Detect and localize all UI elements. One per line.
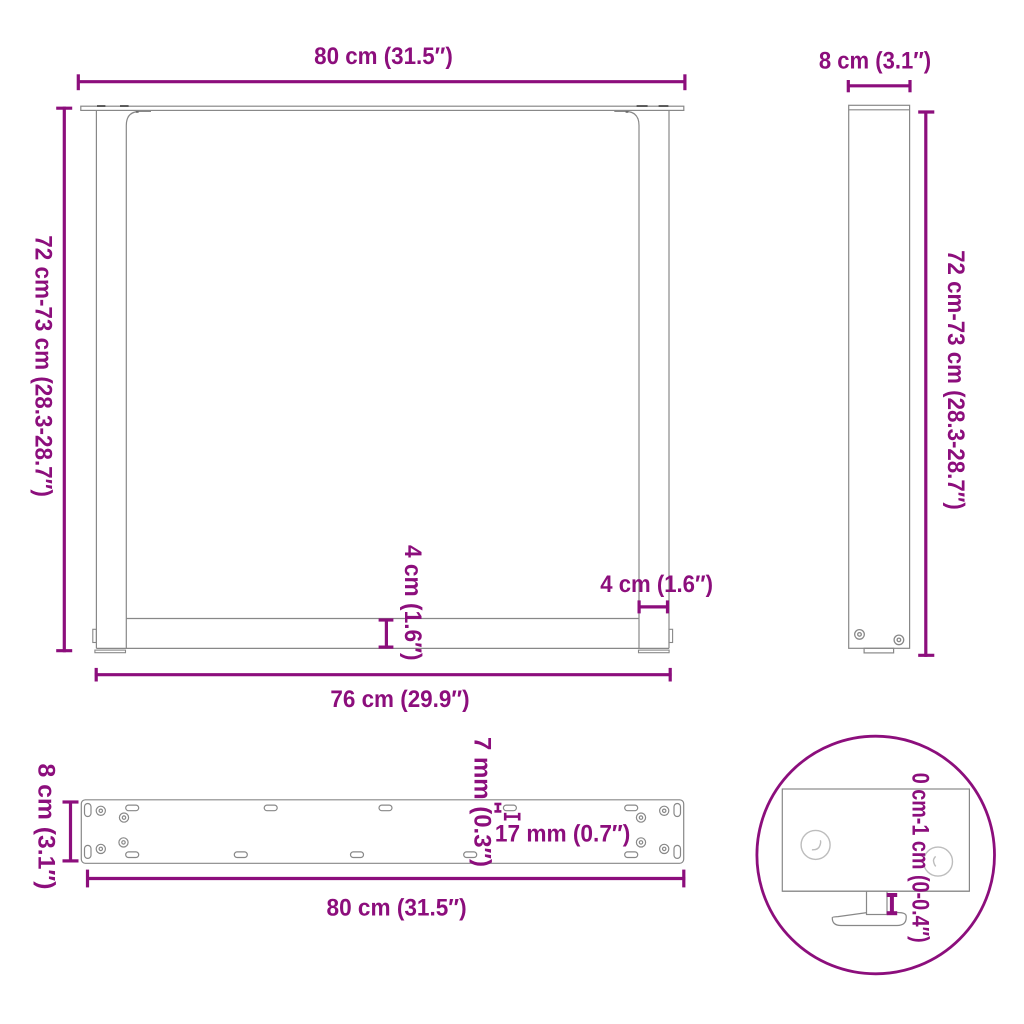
- svg-text:4 cm (1.6″): 4 cm (1.6″): [399, 545, 426, 661]
- svg-text:72 cm-73 cm (28.3-28.7″): 72 cm-73 cm (28.3-28.7″): [29, 235, 56, 497]
- svg-text:72 cm-73 cm (28.3-28.7″): 72 cm-73 cm (28.3-28.7″): [942, 250, 969, 510]
- svg-text:76 cm (29.9″): 76 cm (29.9″): [330, 686, 469, 713]
- svg-text:7 mm (0.3″): 7 mm (0.3″): [469, 737, 496, 867]
- svg-text:80 cm (31.5″): 80 cm (31.5″): [327, 895, 467, 922]
- svg-text:8 cm (3.1″): 8 cm (3.1″): [32, 764, 59, 890]
- svg-text:17 mm (0.7″): 17 mm (0.7″): [495, 821, 630, 848]
- svg-text:80 cm (31.5″): 80 cm (31.5″): [314, 43, 453, 70]
- svg-text:4 cm (1.6″): 4 cm (1.6″): [600, 571, 713, 598]
- svg-text:8 cm (3.1″): 8 cm (3.1″): [819, 48, 931, 75]
- svg-text:0 cm-1 cm (0-0.4″): 0 cm-1 cm (0-0.4″): [907, 773, 934, 943]
